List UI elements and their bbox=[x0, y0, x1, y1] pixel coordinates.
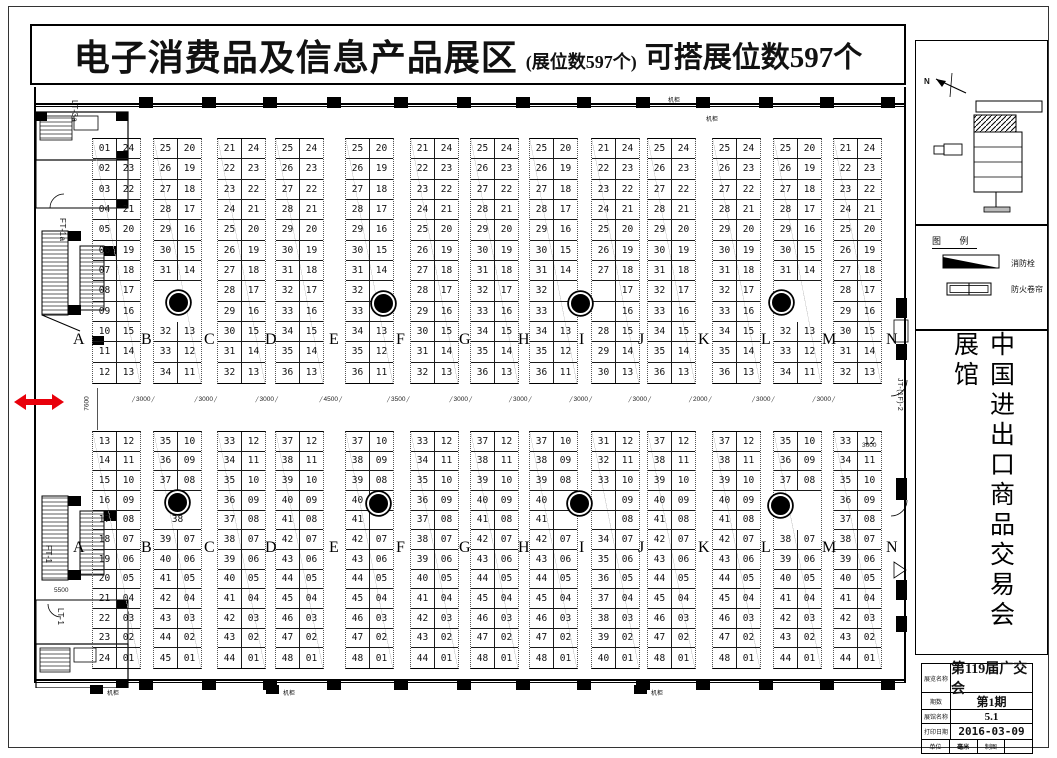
booth-cell: 43 bbox=[471, 550, 495, 569]
booth-row: 2520 bbox=[218, 220, 265, 240]
booth-cell: 28 bbox=[713, 200, 737, 219]
booth-row: 3411 bbox=[218, 452, 265, 472]
booth-row: 4108 bbox=[648, 511, 695, 531]
booth-cell: 08 bbox=[616, 511, 639, 530]
booth-cell: 47 bbox=[276, 629, 300, 648]
booth-row: 4009 bbox=[713, 491, 760, 511]
booth-cell: 16 bbox=[672, 302, 695, 321]
booth-row: 3015 bbox=[834, 322, 881, 342]
booth-cell: 19 bbox=[370, 159, 393, 178]
booth-cell: 35 bbox=[276, 342, 300, 361]
booth-cell: 32 bbox=[276, 281, 300, 300]
booth-cell: 14 bbox=[858, 342, 881, 361]
booth-cell: 38 bbox=[411, 530, 435, 549]
booth-row: 2821 bbox=[648, 200, 695, 220]
booth-cell: 40 bbox=[834, 570, 858, 589]
booth-cell: 17 bbox=[495, 281, 518, 300]
booth-row: 2623 bbox=[648, 159, 695, 179]
booth-cell: 20 bbox=[242, 220, 265, 239]
booth-cell: 27 bbox=[154, 180, 178, 199]
booth-cell: 16 bbox=[300, 302, 323, 321]
booth-cell: 32 bbox=[713, 281, 737, 300]
booth-row: 1510 bbox=[93, 471, 140, 491]
booth-cell: 45 bbox=[276, 589, 300, 608]
booth-row: 0322 bbox=[93, 180, 140, 200]
booth-row: 3019 bbox=[648, 241, 695, 261]
booth-row: 3712 bbox=[648, 432, 695, 452]
booth-cell: 27 bbox=[774, 180, 798, 199]
booth-cell: 38 bbox=[774, 530, 798, 549]
booth-cell: 38 bbox=[471, 452, 495, 471]
booth-cell: 08 bbox=[242, 511, 265, 530]
booth-cell: 47 bbox=[713, 629, 737, 648]
booth-row: 4005 bbox=[411, 570, 458, 590]
booth-cell: 26 bbox=[218, 241, 242, 260]
booth-row: 2916 bbox=[834, 302, 881, 322]
booth-cell: 01 bbox=[242, 648, 265, 668]
booth-cell: 11 bbox=[370, 363, 393, 383]
booth-cell: 01 bbox=[178, 648, 201, 668]
aisle-dimension: 3500 bbox=[387, 396, 410, 403]
booth-row: 2524 bbox=[648, 139, 695, 159]
aisle-dimension: 2000 bbox=[689, 396, 712, 403]
booth-row: 3609 bbox=[154, 452, 201, 472]
booth-row: 4603 bbox=[648, 609, 695, 629]
booth-cell: 43 bbox=[346, 550, 370, 569]
booth-cell: 12 bbox=[300, 432, 323, 451]
booth-row: 2302 bbox=[93, 629, 140, 649]
booth-cell: 20 bbox=[178, 139, 201, 158]
booth-cell: 19 bbox=[435, 241, 458, 260]
booth-cell: 17 bbox=[554, 200, 577, 219]
row-letter-I-bottom: I bbox=[579, 539, 584, 557]
booth-cell: 44 bbox=[713, 570, 737, 589]
booth-cell: 01 bbox=[93, 139, 117, 158]
booth-row: 4207 bbox=[471, 530, 518, 550]
booth-row: 2718 bbox=[592, 261, 639, 281]
row-letter-H-bottom: H bbox=[518, 539, 530, 557]
booth-cell: 43 bbox=[774, 629, 798, 648]
booth-cell: 36 bbox=[154, 452, 178, 471]
booth-strip-top-10: 2524262327222821292030193118321733163415… bbox=[647, 138, 696, 384]
booth-cell: 36 bbox=[218, 491, 242, 510]
row-letter-B-top: B bbox=[141, 331, 152, 349]
booth-row: 3514 bbox=[713, 342, 760, 362]
wall-column bbox=[759, 97, 773, 108]
booth-cell: 33 bbox=[276, 302, 300, 321]
booth-cell: 25 bbox=[411, 220, 435, 239]
booth-cell: 28 bbox=[276, 200, 300, 219]
booth-cell: 35 bbox=[530, 342, 554, 361]
booth-row: 3609 bbox=[218, 491, 265, 511]
booth-strip-top-2: 2520261927182817291630153114321333123411 bbox=[153, 138, 202, 384]
booth-cell: 03 bbox=[242, 609, 265, 628]
booth-row: 2124 bbox=[834, 139, 881, 159]
booth-cell: 23 bbox=[495, 159, 518, 178]
booth-strip-top-7: 2524262327222821292030193118321733163415… bbox=[470, 138, 519, 384]
booth-cell: 41 bbox=[648, 511, 672, 530]
booth-row: 3712 bbox=[276, 432, 323, 452]
booth-cell: 29 bbox=[276, 220, 300, 239]
booth-row: 2619 bbox=[834, 241, 881, 261]
booth-cell: 27 bbox=[592, 261, 616, 280]
booth-cell: 11 bbox=[435, 452, 458, 471]
label-lt1: LT-1 bbox=[56, 608, 65, 625]
booth-row: 2718 bbox=[346, 180, 393, 200]
booth-cell: 20 bbox=[737, 220, 760, 239]
booth-cell: 48 bbox=[276, 648, 300, 668]
booth-cell: 31 bbox=[471, 261, 495, 280]
header-title-bar: 电子消费品及信息产品展区 (展位数597个) 可搭展位数597个 bbox=[30, 24, 906, 85]
booth-cell: 23 bbox=[117, 159, 140, 178]
booth-cell: 23 bbox=[435, 159, 458, 178]
machine-cabinet-label: 机柜 bbox=[107, 688, 119, 697]
booth-strip-top-5: 2520261927182817291630153114323334133512… bbox=[345, 138, 394, 384]
booth-row: 2322 bbox=[592, 180, 639, 200]
booth-row: 3015 bbox=[346, 241, 393, 261]
title-block-value: 5.1 bbox=[951, 710, 1032, 723]
booth-cell: 05 bbox=[93, 220, 117, 239]
booth-cell: 05 bbox=[798, 570, 821, 589]
booth-cell: 33 bbox=[713, 302, 737, 321]
booth-cell: 38 bbox=[530, 452, 554, 471]
booth-row: 3316 bbox=[276, 302, 323, 322]
booth-cell: 35 bbox=[411, 471, 435, 490]
booth-cell: 04 bbox=[554, 589, 577, 608]
booth-row: 4302 bbox=[774, 629, 821, 649]
booth-cell: 42 bbox=[411, 609, 435, 628]
booth-cell: 17 bbox=[300, 281, 323, 300]
booth-row: 2718 bbox=[154, 180, 201, 200]
booth-cell: 20 bbox=[93, 570, 117, 589]
booth-cell: 33 bbox=[834, 432, 858, 451]
booth-cell: 19 bbox=[858, 241, 881, 260]
booth-cell bbox=[592, 302, 616, 321]
booth-cell: 25 bbox=[774, 139, 798, 158]
booth-cell: 32 bbox=[218, 363, 242, 383]
booth-cell: 03 bbox=[495, 609, 518, 628]
booth-cell: 21 bbox=[672, 200, 695, 219]
booth-cell: 17 bbox=[672, 281, 695, 300]
booth-cell: 34 bbox=[276, 322, 300, 341]
booth-row: 2203 bbox=[93, 609, 140, 629]
booth-cell: 17 bbox=[242, 281, 265, 300]
booth-cell: 25 bbox=[471, 139, 495, 158]
booth-cell: 07 bbox=[737, 530, 760, 549]
booth-cell: 05 bbox=[495, 570, 518, 589]
booth-cell: 21 bbox=[592, 139, 616, 158]
booth-cell: 27 bbox=[411, 261, 435, 280]
booth-cell: 22 bbox=[672, 180, 695, 199]
booth-cell: 39 bbox=[648, 471, 672, 490]
booth-cell: 19 bbox=[672, 241, 695, 260]
booth-cell: 10 bbox=[616, 471, 639, 490]
booth-row: 4207 bbox=[276, 530, 323, 550]
booth-row: 2524 bbox=[471, 139, 518, 159]
booth-cell: 42 bbox=[648, 530, 672, 549]
legend-title: 图 例 bbox=[932, 234, 977, 249]
booth-row: 4105 bbox=[154, 570, 201, 590]
aisle-dimension: 3000 bbox=[450, 396, 473, 403]
booth-cell: 31 bbox=[276, 261, 300, 280]
booth-cell: 32 bbox=[471, 281, 495, 300]
booth-row: 2916 bbox=[154, 220, 201, 240]
row-letter-N-top: N bbox=[886, 331, 898, 349]
booth-cell: 24 bbox=[495, 139, 518, 158]
booth-cell: 48 bbox=[713, 648, 737, 668]
aisle-dim-line bbox=[97, 388, 98, 430]
booth-cell: 18 bbox=[858, 261, 881, 280]
booth-cell: 40 bbox=[411, 570, 435, 589]
booth-cell: 09 bbox=[117, 491, 140, 510]
aisle-dimension: 4500 bbox=[320, 396, 343, 403]
booth-cell: 24 bbox=[616, 139, 639, 158]
booth-cell: 25 bbox=[346, 139, 370, 158]
booth-strip-bottom-1: 1312141115101609170818071906200521042203… bbox=[92, 431, 141, 669]
booth-cell: 16 bbox=[554, 220, 577, 239]
row-letter-L-bottom: L bbox=[761, 539, 771, 557]
booth-cell: 02 bbox=[178, 629, 201, 648]
booth-cell: 03 bbox=[300, 609, 323, 628]
booth-cell: 34 bbox=[530, 322, 554, 341]
booth-row: 3415 bbox=[276, 322, 323, 342]
booth-cell: 06 bbox=[178, 550, 201, 569]
booth-row: 2401 bbox=[93, 648, 140, 668]
booth-cell: 31 bbox=[713, 261, 737, 280]
booth-cell: 29 bbox=[834, 302, 858, 321]
booth-cell: 13 bbox=[798, 322, 821, 341]
booth-row: 3411 bbox=[834, 452, 881, 472]
booth-cell: 13 bbox=[178, 322, 201, 341]
booth-cell: 23 bbox=[858, 159, 881, 178]
booth-cell: 07 bbox=[672, 530, 695, 549]
booth-cell: 28 bbox=[834, 281, 858, 300]
booth-cell: 29 bbox=[346, 220, 370, 239]
booth-row: 4306 bbox=[713, 550, 760, 570]
booth-cell: 29 bbox=[411, 302, 435, 321]
booth-row: 4207 bbox=[530, 530, 577, 550]
booth-cell: 44 bbox=[411, 648, 435, 668]
booth-row: 2619 bbox=[346, 159, 393, 179]
booth-cell: 42 bbox=[713, 530, 737, 549]
booth-cell: 25 bbox=[276, 139, 300, 158]
booth-cell: 30 bbox=[592, 363, 616, 383]
booth-row: 3908 bbox=[346, 471, 393, 491]
booth-row: 3013 bbox=[592, 363, 639, 383]
structural-pillar bbox=[367, 492, 390, 515]
booth-cell: 30 bbox=[834, 322, 858, 341]
booth-row: 4504 bbox=[346, 589, 393, 609]
booth-cell: 15 bbox=[737, 322, 760, 341]
booth-row: 3015 bbox=[411, 322, 458, 342]
booth-cell: 05 bbox=[117, 570, 140, 589]
aisle-dimension: 3000 bbox=[629, 396, 652, 403]
booth-row: 3906 bbox=[218, 550, 265, 570]
wall-column bbox=[263, 97, 277, 108]
booth-cell: 36 bbox=[276, 363, 300, 383]
aisle-dimension: 3000 bbox=[509, 396, 532, 403]
booth-cell: 16 bbox=[737, 302, 760, 321]
booth-cell: 15 bbox=[858, 322, 881, 341]
booth-cell: 13 bbox=[554, 322, 577, 341]
booth-cell: 37 bbox=[592, 589, 616, 608]
booth-row: 2817 bbox=[530, 200, 577, 220]
booth-cell: 39 bbox=[592, 629, 616, 648]
row-letter-L-top: L bbox=[761, 331, 771, 349]
booth-row: 3712 bbox=[471, 432, 518, 452]
booth-cell: 44 bbox=[471, 570, 495, 589]
booth-cell: 28 bbox=[774, 200, 798, 219]
booth-cell: 42 bbox=[834, 609, 858, 628]
booth-cell: 12 bbox=[495, 432, 518, 451]
booth-cell: 14 bbox=[616, 342, 639, 361]
booth-cell: 36 bbox=[592, 570, 616, 589]
booth-row: 4104 bbox=[218, 589, 265, 609]
booth-cell: 32 bbox=[774, 322, 798, 341]
booth-row: 4104 bbox=[411, 589, 458, 609]
booth-cell: 22 bbox=[858, 180, 881, 199]
booth-cell: 32 bbox=[346, 281, 370, 300]
booth-row: 2718 bbox=[774, 180, 821, 200]
booth-cell: 13 bbox=[435, 363, 458, 383]
booth-cell: 05 bbox=[370, 570, 393, 589]
booth-row: 4401 bbox=[218, 648, 265, 668]
booth-cell: 16 bbox=[93, 491, 117, 510]
booth-row: 4402 bbox=[154, 629, 201, 649]
booth-row: 2421 bbox=[411, 200, 458, 220]
booth-row: 2718 bbox=[834, 261, 881, 281]
booth-cell: 23 bbox=[672, 159, 695, 178]
booth-cell: 04 bbox=[178, 589, 201, 608]
booth-cell: 33 bbox=[471, 302, 495, 321]
booth-cell: 10 bbox=[554, 432, 577, 451]
booth-cell: 01 bbox=[616, 648, 639, 668]
booth-cell: 21 bbox=[242, 200, 265, 219]
booth-row: 4203 bbox=[834, 609, 881, 629]
booth-row: 2322 bbox=[411, 180, 458, 200]
booth-row: 4104 bbox=[774, 589, 821, 609]
booth-cell: 29 bbox=[471, 220, 495, 239]
booth-cell: 18 bbox=[300, 261, 323, 280]
booth-cell: 04 bbox=[737, 589, 760, 608]
booth-cell: 06 bbox=[554, 550, 577, 569]
title-block: 展览名称第119届广交会期数第1期展馆名称5.1打印日期2016-03-09单位… bbox=[921, 663, 1033, 754]
booth-cell: 42 bbox=[346, 530, 370, 549]
booth-cell: 27 bbox=[648, 180, 672, 199]
booth-cell: 23 bbox=[592, 180, 616, 199]
booth-cell: 41 bbox=[154, 570, 178, 589]
aisle-dimension: 3000 bbox=[256, 396, 279, 403]
booth-cell: 04 bbox=[798, 589, 821, 608]
booth-row: 2817 bbox=[834, 281, 881, 301]
booth-row: 3613 bbox=[713, 363, 760, 383]
booth-row: 2520 bbox=[834, 220, 881, 240]
booth-row: 4801 bbox=[276, 648, 323, 668]
booth-cell: 48 bbox=[346, 648, 370, 668]
booth-cell: 13 bbox=[495, 363, 518, 383]
booth-row: 2421 bbox=[218, 200, 265, 220]
booth-cell: 11 bbox=[798, 363, 821, 383]
booth-cell: 09 bbox=[616, 491, 639, 510]
booth-cell: 24 bbox=[737, 139, 760, 158]
booth-cell: 42 bbox=[471, 530, 495, 549]
booth-strip-top-13: 2124222323222421252026192718281729163015… bbox=[833, 138, 882, 384]
wall-column bbox=[202, 679, 216, 690]
booth-row: 3708 bbox=[834, 511, 881, 531]
booth-cell: 31 bbox=[218, 342, 242, 361]
booth-row: 3213 bbox=[411, 363, 458, 383]
booth-row: 4203 bbox=[411, 609, 458, 629]
booth-row: 4108 bbox=[713, 511, 760, 531]
booth-row: 1609 bbox=[93, 491, 140, 511]
booth-cell: 23 bbox=[300, 159, 323, 178]
booth-cell: 30 bbox=[218, 322, 242, 341]
booth-cell: 15 bbox=[798, 241, 821, 260]
booth-cell: 42 bbox=[774, 609, 798, 628]
row-letter-D-bottom: D bbox=[265, 539, 277, 557]
booth-cell: 48 bbox=[648, 648, 672, 668]
booth-row: 2524 bbox=[276, 139, 323, 159]
booth-row: 3019 bbox=[471, 241, 518, 261]
wall-column bbox=[394, 679, 408, 690]
row-letter-E-top: E bbox=[329, 331, 339, 349]
booth-cell: 08 bbox=[672, 511, 695, 530]
booth-cell: 06 bbox=[93, 241, 117, 260]
booth-row: 2421 bbox=[592, 200, 639, 220]
booth-cell: 16 bbox=[495, 302, 518, 321]
booth-cell: 11 bbox=[554, 363, 577, 383]
booth-cell: 33 bbox=[154, 342, 178, 361]
booth-row: 3312 bbox=[154, 342, 201, 362]
booth-cell: 37 bbox=[530, 432, 554, 451]
booth-cell: 09 bbox=[242, 491, 265, 510]
booth-cell: 40 bbox=[648, 491, 672, 510]
legend-item-fire-shutter: 防火卷帘 bbox=[1011, 284, 1043, 295]
booth-cell: 44 bbox=[774, 648, 798, 668]
booth-row: 4603 bbox=[346, 609, 393, 629]
booth-strip-bottom-10: 3712381139104009410842074306440545044603… bbox=[647, 431, 696, 669]
booth-cell: 03 bbox=[554, 609, 577, 628]
booth-row: 2817 bbox=[774, 200, 821, 220]
booth-cell: 14 bbox=[737, 342, 760, 361]
booth-row: 2005 bbox=[93, 570, 140, 590]
structural-pillar bbox=[769, 494, 792, 517]
booth-row: 4302 bbox=[834, 629, 881, 649]
booth-cell: 21 bbox=[737, 200, 760, 219]
booth-cell: 04 bbox=[616, 589, 639, 608]
booth-cell: 12 bbox=[672, 432, 695, 451]
booth-cell: 13 bbox=[616, 363, 639, 383]
booth-cell: 04 bbox=[370, 589, 393, 608]
booth-row: 4006 bbox=[154, 550, 201, 570]
booth-cell: 06 bbox=[672, 550, 695, 569]
booth-cell: 03 bbox=[117, 609, 140, 628]
booth-row: 3217 bbox=[276, 281, 323, 301]
booth-cell: 02 bbox=[242, 629, 265, 648]
booth-row: 4504 bbox=[648, 589, 695, 609]
booth-cell: 20 bbox=[798, 139, 821, 158]
booth-cell: 11 bbox=[242, 452, 265, 471]
booth-cell: 26 bbox=[471, 159, 495, 178]
booth-cell: 29 bbox=[774, 220, 798, 239]
booth-cell: 02 bbox=[93, 159, 117, 178]
wall-column bbox=[394, 97, 408, 108]
booth-cell: 02 bbox=[554, 629, 577, 648]
booth-cell: 30 bbox=[276, 241, 300, 260]
booth-cell: 28 bbox=[154, 200, 178, 219]
booth-strip-top-12: 2520261927182817291630153114321333123411 bbox=[773, 138, 822, 384]
booth-row: 3316 bbox=[471, 302, 518, 322]
